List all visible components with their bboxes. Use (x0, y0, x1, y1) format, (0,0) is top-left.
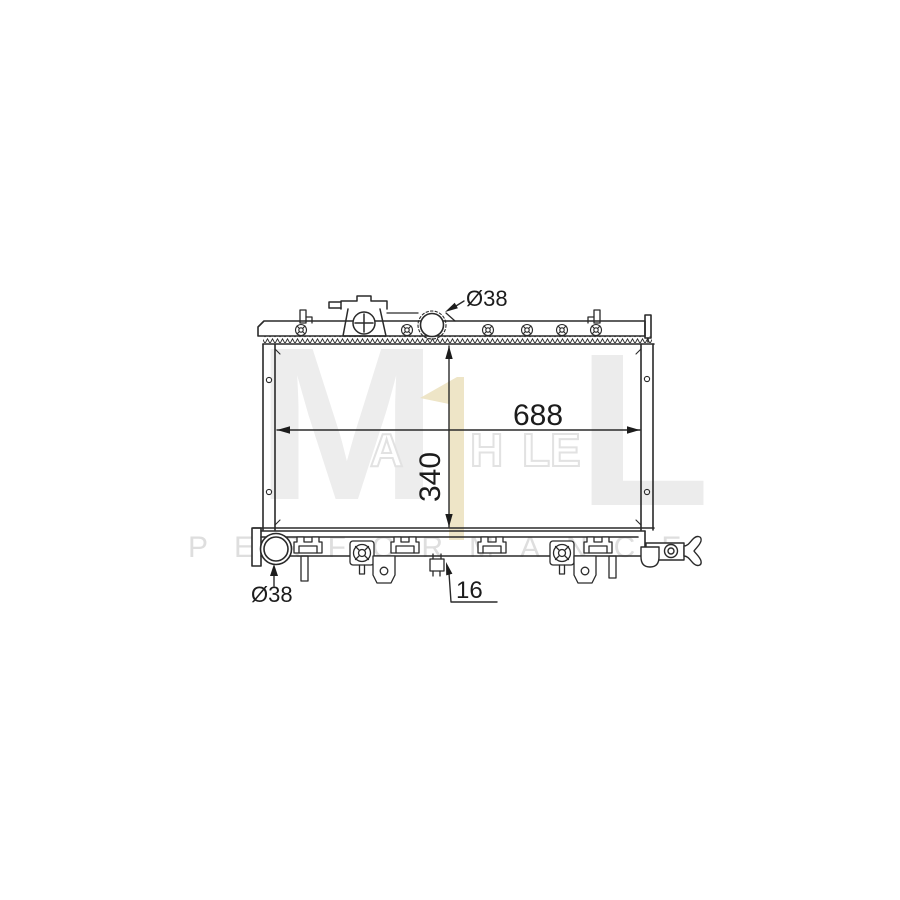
dimension-inlet-leader (445, 301, 464, 312)
inlet-port (418, 311, 446, 339)
label-outlet-diameter: Ø38 (251, 582, 293, 607)
pitch-bracket (430, 554, 444, 576)
label-core-width: 688 (513, 399, 563, 432)
overflow-nipple (329, 302, 341, 308)
filler-neck (329, 296, 387, 336)
radiator-drawing-page: M L A H L E PERFORMANCE (0, 0, 900, 900)
label-pitch: 16 (456, 577, 483, 604)
label-core-height: 340 (414, 452, 447, 502)
outlet-port (261, 534, 292, 565)
label-inlet-diameter: Ø38 (466, 286, 508, 311)
bottom-tank (252, 528, 701, 583)
right-side-channel (636, 344, 653, 530)
radiator-drawing-svg: Ø38 688 340 Ø38 16 (0, 0, 900, 900)
side-mount-arm (641, 537, 701, 567)
left-side-channel (263, 344, 280, 530)
top-tank-screws (296, 325, 602, 336)
top-tank (258, 296, 654, 344)
fork-end (684, 537, 701, 566)
